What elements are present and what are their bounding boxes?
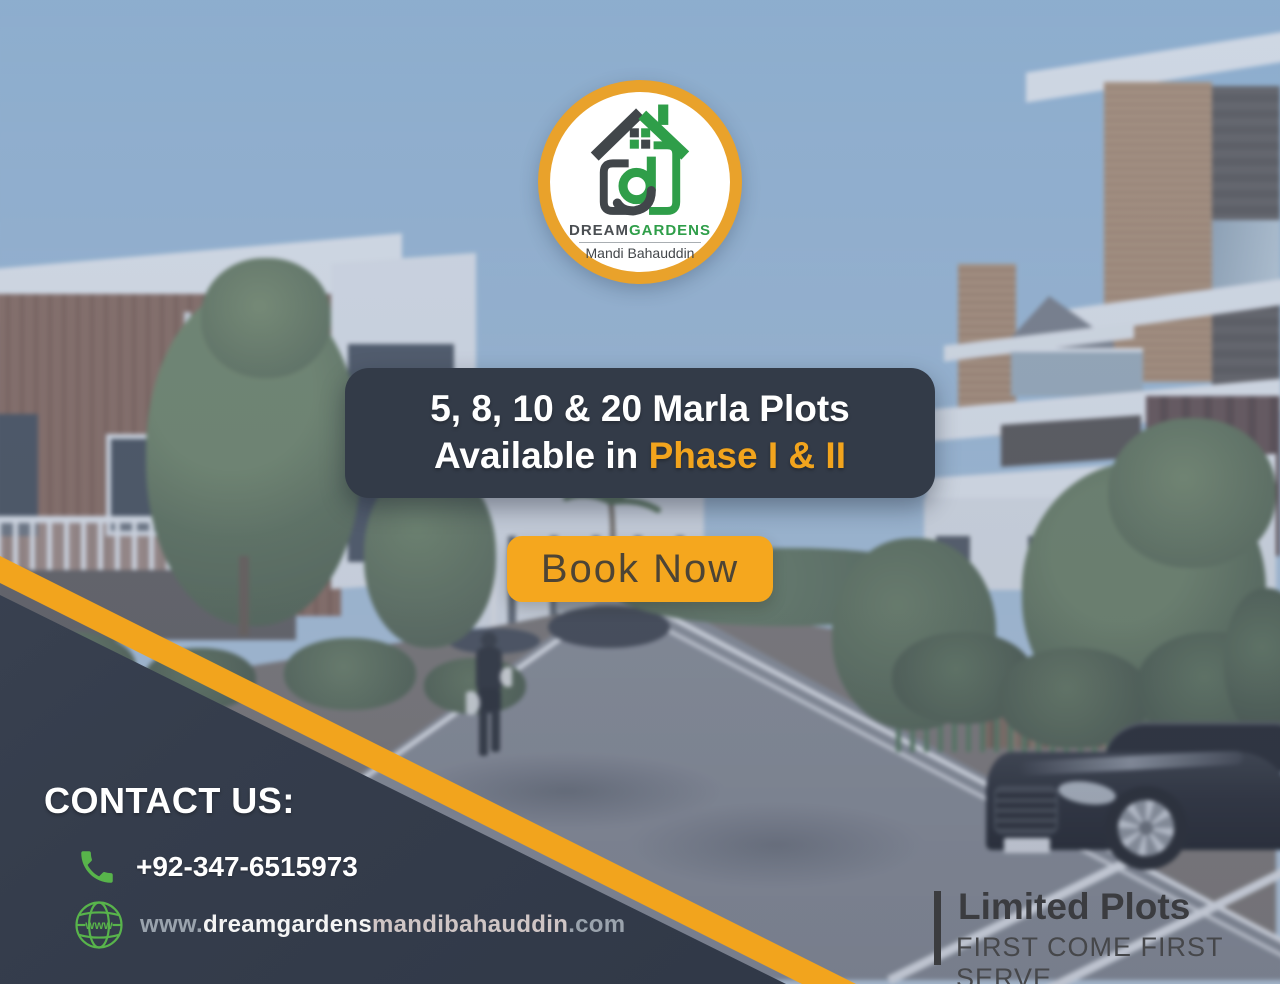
limited-plots-divider xyxy=(934,891,941,965)
headline-line2: Available in Phase I & II xyxy=(434,436,846,477)
brand-name: DREAMGARDENS xyxy=(569,222,711,239)
brand-name-primary: DREAM xyxy=(569,222,629,239)
website-mid: mandibahauddin xyxy=(372,911,568,938)
left-bush-3 xyxy=(284,638,416,710)
limited-plots-subtitle: FIRST COME FIRST SERVE xyxy=(956,932,1280,984)
left-big-tree-top xyxy=(201,258,331,378)
headline-line2-prefix: Available in xyxy=(434,435,649,476)
car-plate xyxy=(1004,838,1050,853)
phone-icon xyxy=(76,846,118,888)
phone-number: +92-347-6515973 xyxy=(136,851,358,883)
car-wheel-hub xyxy=(1139,821,1153,835)
contact-heading: CONTACT US: xyxy=(44,780,295,822)
right-glass-balcony xyxy=(1011,348,1143,396)
phone-row[interactable]: +92-347-6515973 xyxy=(76,846,358,888)
left-tree-trunk xyxy=(239,556,249,636)
car xyxy=(986,724,1280,880)
book-now-button[interactable]: Book Now xyxy=(507,536,773,602)
poster: DREAMGARDENS Mandi Bahauddin 5, 8, 10 & … xyxy=(0,0,1280,984)
brand-name-secondary: GARDENS xyxy=(629,222,711,239)
website-row[interactable]: www www.dreamgardensmandibahauddin.com xyxy=(72,898,625,952)
logo-divider-line xyxy=(579,242,701,243)
headline-line2-highlight: Phase I & II xyxy=(649,435,846,476)
website-url: www.dreamgardensmandibahauddin.com xyxy=(140,911,625,939)
right-big-tree-top xyxy=(1108,418,1276,568)
globe-www-icon: www xyxy=(72,898,126,952)
headline-line1: 5, 8, 10 & 20 Marla Plots xyxy=(430,389,850,430)
headline-banner: 5, 8, 10 & 20 Marla Plots Available in P… xyxy=(345,368,935,498)
road-shadow-2 xyxy=(626,802,926,888)
car-grille xyxy=(994,786,1058,834)
website-www: www. xyxy=(140,911,203,938)
pedestrian xyxy=(466,630,512,762)
limited-plots-title: Limited Plots xyxy=(958,886,1190,928)
website-name: dreamgardens xyxy=(203,911,372,938)
svg-text:www: www xyxy=(84,919,113,932)
house-monogram-icon xyxy=(581,100,699,220)
brand-logo: DREAMGARDENS Mandi Bahauddin xyxy=(538,80,742,284)
website-tld: .com xyxy=(568,911,625,938)
brand-tagline: Mandi Bahauddin xyxy=(586,245,695,261)
